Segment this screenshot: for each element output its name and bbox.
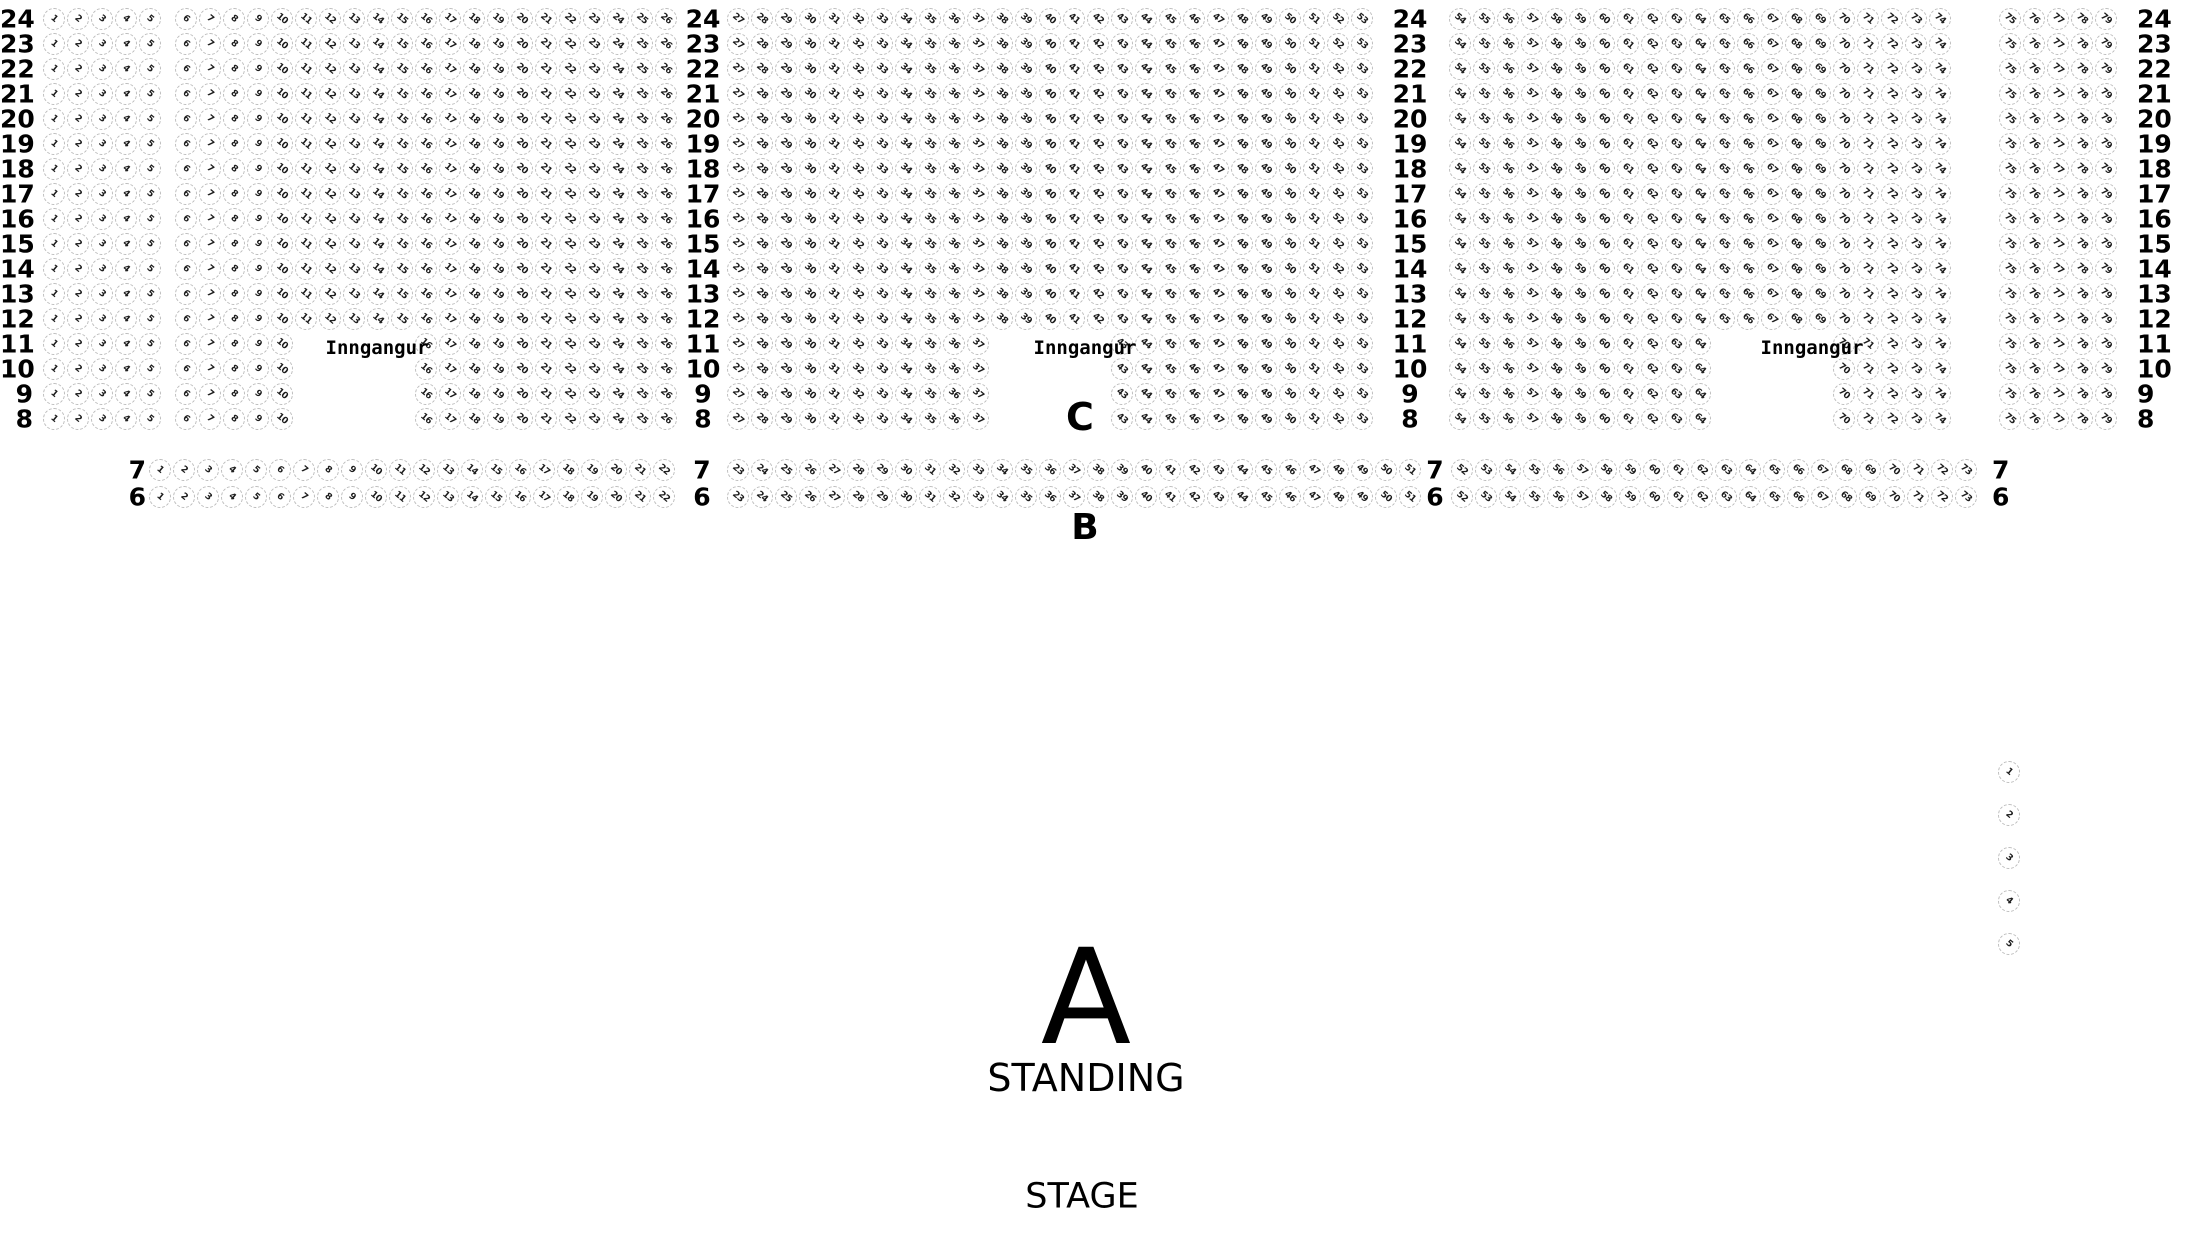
- seat[interactable]: 78: [2071, 133, 2093, 155]
- seat[interactable]: 44: [1135, 58, 1157, 80]
- seat[interactable]: 43: [1111, 108, 1133, 130]
- seat[interactable]: 36: [943, 208, 965, 230]
- seat[interactable]: 41: [1063, 258, 1085, 280]
- seat[interactable]: 39: [1015, 33, 1037, 55]
- seat[interactable]: 37: [1063, 486, 1085, 508]
- seat[interactable]: 48: [1231, 358, 1253, 380]
- seat[interactable]: 6: [269, 486, 291, 508]
- seat[interactable]: 61: [1617, 383, 1639, 405]
- seat[interactable]: 54: [1449, 208, 1471, 230]
- seat[interactable]: 23: [583, 33, 605, 55]
- seat[interactable]: 26: [655, 183, 677, 205]
- seat[interactable]: 13: [343, 258, 365, 280]
- seat[interactable]: 59: [1569, 333, 1591, 355]
- seat[interactable]: 27: [727, 308, 749, 330]
- seat[interactable]: 9: [247, 158, 269, 180]
- seat[interactable]: 23: [727, 486, 749, 508]
- seat[interactable]: 52: [1327, 283, 1349, 305]
- seat[interactable]: 8: [223, 183, 245, 205]
- seat[interactable]: 33: [871, 408, 893, 430]
- seat[interactable]: 49: [1351, 459, 1373, 481]
- seat[interactable]: 72: [1881, 333, 1903, 355]
- seat[interactable]: 75: [1999, 133, 2021, 155]
- seat[interactable]: 51: [1399, 459, 1421, 481]
- seat[interactable]: 34: [991, 486, 1013, 508]
- seat[interactable]: 34: [895, 383, 917, 405]
- seat[interactable]: 54: [1449, 8, 1471, 30]
- seat[interactable]: 64: [1689, 283, 1711, 305]
- seat[interactable]: 4: [221, 459, 243, 481]
- seat[interactable]: 41: [1063, 58, 1085, 80]
- seat[interactable]: 64: [1689, 383, 1711, 405]
- seat[interactable]: 20: [511, 208, 533, 230]
- seat[interactable]: 44: [1135, 308, 1157, 330]
- seat[interactable]: 44: [1135, 133, 1157, 155]
- seat[interactable]: 5: [139, 358, 161, 380]
- seat[interactable]: 30: [799, 108, 821, 130]
- seat[interactable]: 7: [293, 486, 315, 508]
- seat[interactable]: 51: [1303, 33, 1325, 55]
- seat[interactable]: 11: [295, 258, 317, 280]
- seat[interactable]: 6: [175, 158, 197, 180]
- seat[interactable]: 64: [1689, 333, 1711, 355]
- seat[interactable]: 69: [1809, 233, 1831, 255]
- seat[interactable]: 60: [1593, 358, 1615, 380]
- seat[interactable]: 30: [799, 133, 821, 155]
- seat[interactable]: 14: [367, 233, 389, 255]
- seat[interactable]: 14: [367, 33, 389, 55]
- seat[interactable]: 28: [751, 383, 773, 405]
- seat[interactable]: 64: [1689, 108, 1711, 130]
- seat[interactable]: 21: [535, 233, 557, 255]
- seat[interactable]: 18: [463, 158, 485, 180]
- seat[interactable]: 11: [295, 58, 317, 80]
- seat[interactable]: 69: [1809, 133, 1831, 155]
- seat[interactable]: 39: [1015, 308, 1037, 330]
- seat[interactable]: 62: [1641, 258, 1663, 280]
- seat[interactable]: 4: [115, 33, 137, 55]
- seat[interactable]: 34: [895, 133, 917, 155]
- seat[interactable]: 6: [175, 383, 197, 405]
- seat[interactable]: 57: [1571, 459, 1593, 481]
- seat[interactable]: 57: [1521, 408, 1543, 430]
- seat[interactable]: 72: [1881, 83, 1903, 105]
- seat[interactable]: 43: [1111, 358, 1133, 380]
- seat[interactable]: 33: [871, 133, 893, 155]
- seat[interactable]: 76: [2023, 308, 2045, 330]
- seat[interactable]: 43: [1111, 58, 1133, 80]
- seat[interactable]: 78: [2071, 208, 2093, 230]
- seat[interactable]: 20: [511, 8, 533, 30]
- seat[interactable]: 59: [1569, 283, 1591, 305]
- seat[interactable]: 23: [583, 233, 605, 255]
- seat[interactable]: 34: [895, 308, 917, 330]
- seat[interactable]: 37: [967, 408, 989, 430]
- seat[interactable]: 17: [439, 358, 461, 380]
- seat[interactable]: 7: [199, 158, 221, 180]
- seat[interactable]: 55: [1473, 208, 1495, 230]
- seat[interactable]: 71: [1857, 83, 1879, 105]
- seat[interactable]: 75: [1999, 258, 2021, 280]
- seat[interactable]: 20: [511, 108, 533, 130]
- seat[interactable]: 66: [1737, 83, 1759, 105]
- seat[interactable]: 53: [1351, 183, 1373, 205]
- seat[interactable]: 22: [559, 83, 581, 105]
- seat[interactable]: 4: [115, 183, 137, 205]
- seat[interactable]: 53: [1351, 383, 1373, 405]
- seat[interactable]: 19: [487, 308, 509, 330]
- seat[interactable]: 46: [1183, 333, 1205, 355]
- seat[interactable]: 34: [895, 408, 917, 430]
- seat[interactable]: 22: [559, 383, 581, 405]
- seat[interactable]: 75: [1999, 183, 2021, 205]
- seat[interactable]: 79: [2095, 408, 2117, 430]
- seat[interactable]: 1: [43, 133, 65, 155]
- seat[interactable]: 49: [1255, 83, 1277, 105]
- seat[interactable]: 15: [391, 283, 413, 305]
- seat[interactable]: 56: [1497, 183, 1519, 205]
- seat[interactable]: 56: [1497, 333, 1519, 355]
- seat[interactable]: 71: [1857, 58, 1879, 80]
- seat[interactable]: 61: [1617, 308, 1639, 330]
- seat[interactable]: 60: [1593, 133, 1615, 155]
- seat[interactable]: 33: [871, 183, 893, 205]
- seat[interactable]: 48: [1231, 208, 1253, 230]
- seat[interactable]: 7: [199, 133, 221, 155]
- seat[interactable]: 70: [1833, 358, 1855, 380]
- seat[interactable]: 71: [1857, 108, 1879, 130]
- seat[interactable]: 48: [1231, 308, 1253, 330]
- seat[interactable]: 35: [919, 83, 941, 105]
- seat[interactable]: 15: [391, 308, 413, 330]
- seat[interactable]: 32: [847, 33, 869, 55]
- seat[interactable]: 38: [991, 33, 1013, 55]
- seat[interactable]: 44: [1135, 283, 1157, 305]
- seat[interactable]: 26: [655, 408, 677, 430]
- seat[interactable]: 16: [415, 33, 437, 55]
- seat[interactable]: 42: [1087, 308, 1109, 330]
- seat[interactable]: 32: [847, 158, 869, 180]
- seat[interactable]: 47: [1207, 233, 1229, 255]
- seat[interactable]: 33: [871, 258, 893, 280]
- seat[interactable]: 19: [487, 108, 509, 130]
- seat[interactable]: 8: [223, 8, 245, 30]
- seat[interactable]: 44: [1231, 486, 1253, 508]
- seat[interactable]: 48: [1231, 158, 1253, 180]
- seat[interactable]: 65: [1713, 8, 1735, 30]
- seat[interactable]: 19: [581, 459, 603, 481]
- seat[interactable]: 75: [1999, 333, 2021, 355]
- seat[interactable]: 79: [2095, 358, 2117, 380]
- seat[interactable]: 6: [175, 108, 197, 130]
- seat[interactable]: 24: [751, 486, 773, 508]
- seat[interactable]: 55: [1473, 233, 1495, 255]
- seat[interactable]: 48: [1231, 233, 1253, 255]
- seat[interactable]: 76: [2023, 408, 2045, 430]
- seat[interactable]: 1: [43, 33, 65, 55]
- seat[interactable]: 71: [1857, 408, 1879, 430]
- seat[interactable]: 59: [1569, 258, 1591, 280]
- seat[interactable]: 55: [1473, 108, 1495, 130]
- seat[interactable]: 32: [847, 108, 869, 130]
- seat[interactable]: 45: [1255, 459, 1277, 481]
- seat[interactable]: 11: [295, 233, 317, 255]
- seat[interactable]: 2: [67, 158, 89, 180]
- seat[interactable]: 5: [139, 133, 161, 155]
- seat[interactable]: 60: [1593, 208, 1615, 230]
- seat[interactable]: 8: [223, 33, 245, 55]
- seat[interactable]: 74: [1929, 8, 1951, 30]
- seat[interactable]: 43: [1111, 133, 1133, 155]
- seat[interactable]: 46: [1183, 283, 1205, 305]
- seat[interactable]: 65: [1713, 308, 1735, 330]
- seat[interactable]: 45: [1159, 33, 1181, 55]
- seat[interactable]: 32: [847, 233, 869, 255]
- seat[interactable]: 77: [2047, 133, 2069, 155]
- seat[interactable]: 74: [1929, 183, 1951, 205]
- seat[interactable]: 26: [655, 258, 677, 280]
- seat[interactable]: 29: [775, 308, 797, 330]
- seat[interactable]: 28: [751, 358, 773, 380]
- seat[interactable]: 29: [775, 83, 797, 105]
- seat[interactable]: 56: [1497, 358, 1519, 380]
- seat[interactable]: 14: [367, 283, 389, 305]
- seat[interactable]: 12: [319, 8, 341, 30]
- seat[interactable]: 13: [343, 208, 365, 230]
- seat[interactable]: 5: [139, 8, 161, 30]
- seat[interactable]: 57: [1521, 58, 1543, 80]
- seat[interactable]: 57: [1521, 83, 1543, 105]
- seat[interactable]: 45: [1159, 8, 1181, 30]
- seat[interactable]: 21: [535, 283, 557, 305]
- seat[interactable]: 41: [1063, 208, 1085, 230]
- seat[interactable]: 70: [1833, 233, 1855, 255]
- seat[interactable]: 40: [1039, 258, 1061, 280]
- seat[interactable]: 54: [1449, 233, 1471, 255]
- seat[interactable]: 16: [415, 208, 437, 230]
- seat[interactable]: 37: [967, 133, 989, 155]
- seat[interactable]: 63: [1665, 8, 1687, 30]
- seat[interactable]: 39: [1015, 233, 1037, 255]
- seat[interactable]: 11: [295, 83, 317, 105]
- seat[interactable]: 10: [271, 258, 293, 280]
- seat[interactable]: 58: [1545, 308, 1567, 330]
- seat[interactable]: 2: [67, 308, 89, 330]
- seat[interactable]: 58: [1545, 33, 1567, 55]
- seat[interactable]: 33: [871, 358, 893, 380]
- seat[interactable]: 46: [1183, 408, 1205, 430]
- seat[interactable]: 6: [175, 283, 197, 305]
- seat[interactable]: 54: [1499, 459, 1521, 481]
- seat[interactable]: 74: [1929, 233, 1951, 255]
- seat[interactable]: 3: [91, 158, 113, 180]
- seat[interactable]: 15: [391, 133, 413, 155]
- seat[interactable]: 35: [919, 33, 941, 55]
- seat[interactable]: 55: [1473, 283, 1495, 305]
- seat[interactable]: 38: [991, 133, 1013, 155]
- seat[interactable]: 43: [1111, 8, 1133, 30]
- seat[interactable]: 52: [1327, 233, 1349, 255]
- seat[interactable]: 21: [629, 459, 651, 481]
- seat[interactable]: 21: [535, 408, 557, 430]
- seat[interactable]: 5: [139, 383, 161, 405]
- seat[interactable]: 44: [1135, 158, 1157, 180]
- seat[interactable]: 34: [895, 33, 917, 55]
- seat[interactable]: 21: [535, 383, 557, 405]
- seat[interactable]: 16: [415, 408, 437, 430]
- seat[interactable]: 30: [799, 58, 821, 80]
- seat[interactable]: 31: [823, 383, 845, 405]
- seat[interactable]: 45: [1159, 58, 1181, 80]
- seat[interactable]: 56: [1497, 83, 1519, 105]
- seat[interactable]: 49: [1255, 308, 1277, 330]
- seat[interactable]: 36: [943, 383, 965, 405]
- seat[interactable]: 62: [1641, 408, 1663, 430]
- seat[interactable]: 45: [1159, 358, 1181, 380]
- seat[interactable]: 61: [1617, 83, 1639, 105]
- seat[interactable]: 76: [2023, 283, 2045, 305]
- seat[interactable]: 76: [2023, 183, 2045, 205]
- seat[interactable]: 57: [1521, 333, 1543, 355]
- seat[interactable]: 7: [293, 459, 315, 481]
- seat[interactable]: 53: [1351, 208, 1373, 230]
- seat[interactable]: 21: [535, 58, 557, 80]
- seat[interactable]: 27: [727, 333, 749, 355]
- seat[interactable]: 78: [2071, 283, 2093, 305]
- seat[interactable]: 53: [1351, 58, 1373, 80]
- seat[interactable]: 54: [1449, 308, 1471, 330]
- seat[interactable]: 27: [823, 486, 845, 508]
- seat[interactable]: 32: [847, 358, 869, 380]
- seat[interactable]: 55: [1473, 158, 1495, 180]
- seat[interactable]: 37: [967, 8, 989, 30]
- seat[interactable]: 22: [559, 233, 581, 255]
- seat[interactable]: 4: [115, 233, 137, 255]
- seat[interactable]: 45: [1159, 183, 1181, 205]
- seat[interactable]: 72: [1881, 183, 1903, 205]
- seat[interactable]: 14: [367, 258, 389, 280]
- seat[interactable]: 73: [1905, 133, 1927, 155]
- seat[interactable]: 9: [247, 133, 269, 155]
- seat[interactable]: 44: [1135, 333, 1157, 355]
- seat[interactable]: 61: [1617, 58, 1639, 80]
- seat[interactable]: 17: [439, 208, 461, 230]
- seat[interactable]: 7: [199, 233, 221, 255]
- seat[interactable]: 38: [991, 8, 1013, 30]
- seat[interactable]: 2: [67, 283, 89, 305]
- seat[interactable]: 25: [631, 358, 653, 380]
- seat[interactable]: 78: [2071, 258, 2093, 280]
- seat[interactable]: 51: [1303, 383, 1325, 405]
- seat[interactable]: 71: [1857, 133, 1879, 155]
- seat[interactable]: 77: [2047, 258, 2069, 280]
- seat[interactable]: 60: [1593, 408, 1615, 430]
- seat[interactable]: 35: [919, 258, 941, 280]
- seat[interactable]: 63: [1715, 459, 1737, 481]
- seat[interactable]: 70: [1833, 133, 1855, 155]
- seat[interactable]: 20: [511, 133, 533, 155]
- seat[interactable]: 78: [2071, 33, 2093, 55]
- seat[interactable]: 11: [295, 158, 317, 180]
- seat[interactable]: 19: [487, 358, 509, 380]
- seat[interactable]: 74: [1929, 208, 1951, 230]
- seat[interactable]: 26: [655, 158, 677, 180]
- seat[interactable]: 20: [511, 83, 533, 105]
- seat[interactable]: 39: [1015, 283, 1037, 305]
- seat[interactable]: 23: [583, 333, 605, 355]
- seat[interactable]: 24: [607, 233, 629, 255]
- seat[interactable]: 74: [1929, 133, 1951, 155]
- seat[interactable]: 4: [115, 208, 137, 230]
- seat[interactable]: 9: [247, 258, 269, 280]
- seat[interactable]: 8: [223, 83, 245, 105]
- seat[interactable]: 46: [1183, 133, 1205, 155]
- seat[interactable]: 28: [751, 133, 773, 155]
- seat[interactable]: 8: [317, 459, 339, 481]
- seat[interactable]: 2: [67, 8, 89, 30]
- seat[interactable]: 79: [2095, 133, 2117, 155]
- seat[interactable]: 68: [1785, 183, 1807, 205]
- seat[interactable]: 17: [439, 383, 461, 405]
- seat[interactable]: 50: [1279, 383, 1301, 405]
- seat[interactable]: 24: [607, 408, 629, 430]
- seat[interactable]: 50: [1279, 158, 1301, 180]
- seat[interactable]: 38: [1087, 486, 1109, 508]
- seat[interactable]: 35: [919, 158, 941, 180]
- seat[interactable]: 69: [1809, 258, 1831, 280]
- seat[interactable]: 10: [271, 233, 293, 255]
- seat[interactable]: 22: [559, 58, 581, 80]
- seat[interactable]: 68: [1785, 58, 1807, 80]
- seat[interactable]: 8: [223, 283, 245, 305]
- seat[interactable]: 10: [271, 408, 293, 430]
- seat[interactable]: 63: [1715, 486, 1737, 508]
- seat[interactable]: 49: [1255, 208, 1277, 230]
- seat[interactable]: 20: [511, 183, 533, 205]
- seat[interactable]: 2: [173, 486, 195, 508]
- seat[interactable]: 14: [367, 308, 389, 330]
- seat[interactable]: 34: [895, 333, 917, 355]
- seat[interactable]: 17: [439, 133, 461, 155]
- seat[interactable]: 71: [1857, 258, 1879, 280]
- seat[interactable]: 62: [1641, 358, 1663, 380]
- seat[interactable]: 10: [271, 133, 293, 155]
- seat[interactable]: 59: [1569, 358, 1591, 380]
- seat[interactable]: 12: [319, 233, 341, 255]
- seat[interactable]: 8: [223, 333, 245, 355]
- seat[interactable]: 7: [199, 108, 221, 130]
- seat[interactable]: 15: [485, 486, 507, 508]
- seat[interactable]: 9: [247, 183, 269, 205]
- seat[interactable]: 2: [173, 459, 195, 481]
- seat[interactable]: 79: [2095, 233, 2117, 255]
- seat[interactable]: 70: [1833, 408, 1855, 430]
- seat[interactable]: 25: [631, 108, 653, 130]
- seat[interactable]: 40: [1039, 58, 1061, 80]
- seat[interactable]: 28: [751, 308, 773, 330]
- seat[interactable]: 33: [871, 108, 893, 130]
- seat[interactable]: 59: [1569, 83, 1591, 105]
- seat[interactable]: 17: [439, 233, 461, 255]
- seat[interactable]: 2: [67, 108, 89, 130]
- seat[interactable]: 68: [1785, 83, 1807, 105]
- seat[interactable]: 41: [1063, 283, 1085, 305]
- seat[interactable]: 68: [1835, 459, 1857, 481]
- seat[interactable]: 72: [1881, 133, 1903, 155]
- seat[interactable]: 36: [943, 183, 965, 205]
- seat[interactable]: 38: [991, 308, 1013, 330]
- seat[interactable]: 41: [1063, 108, 1085, 130]
